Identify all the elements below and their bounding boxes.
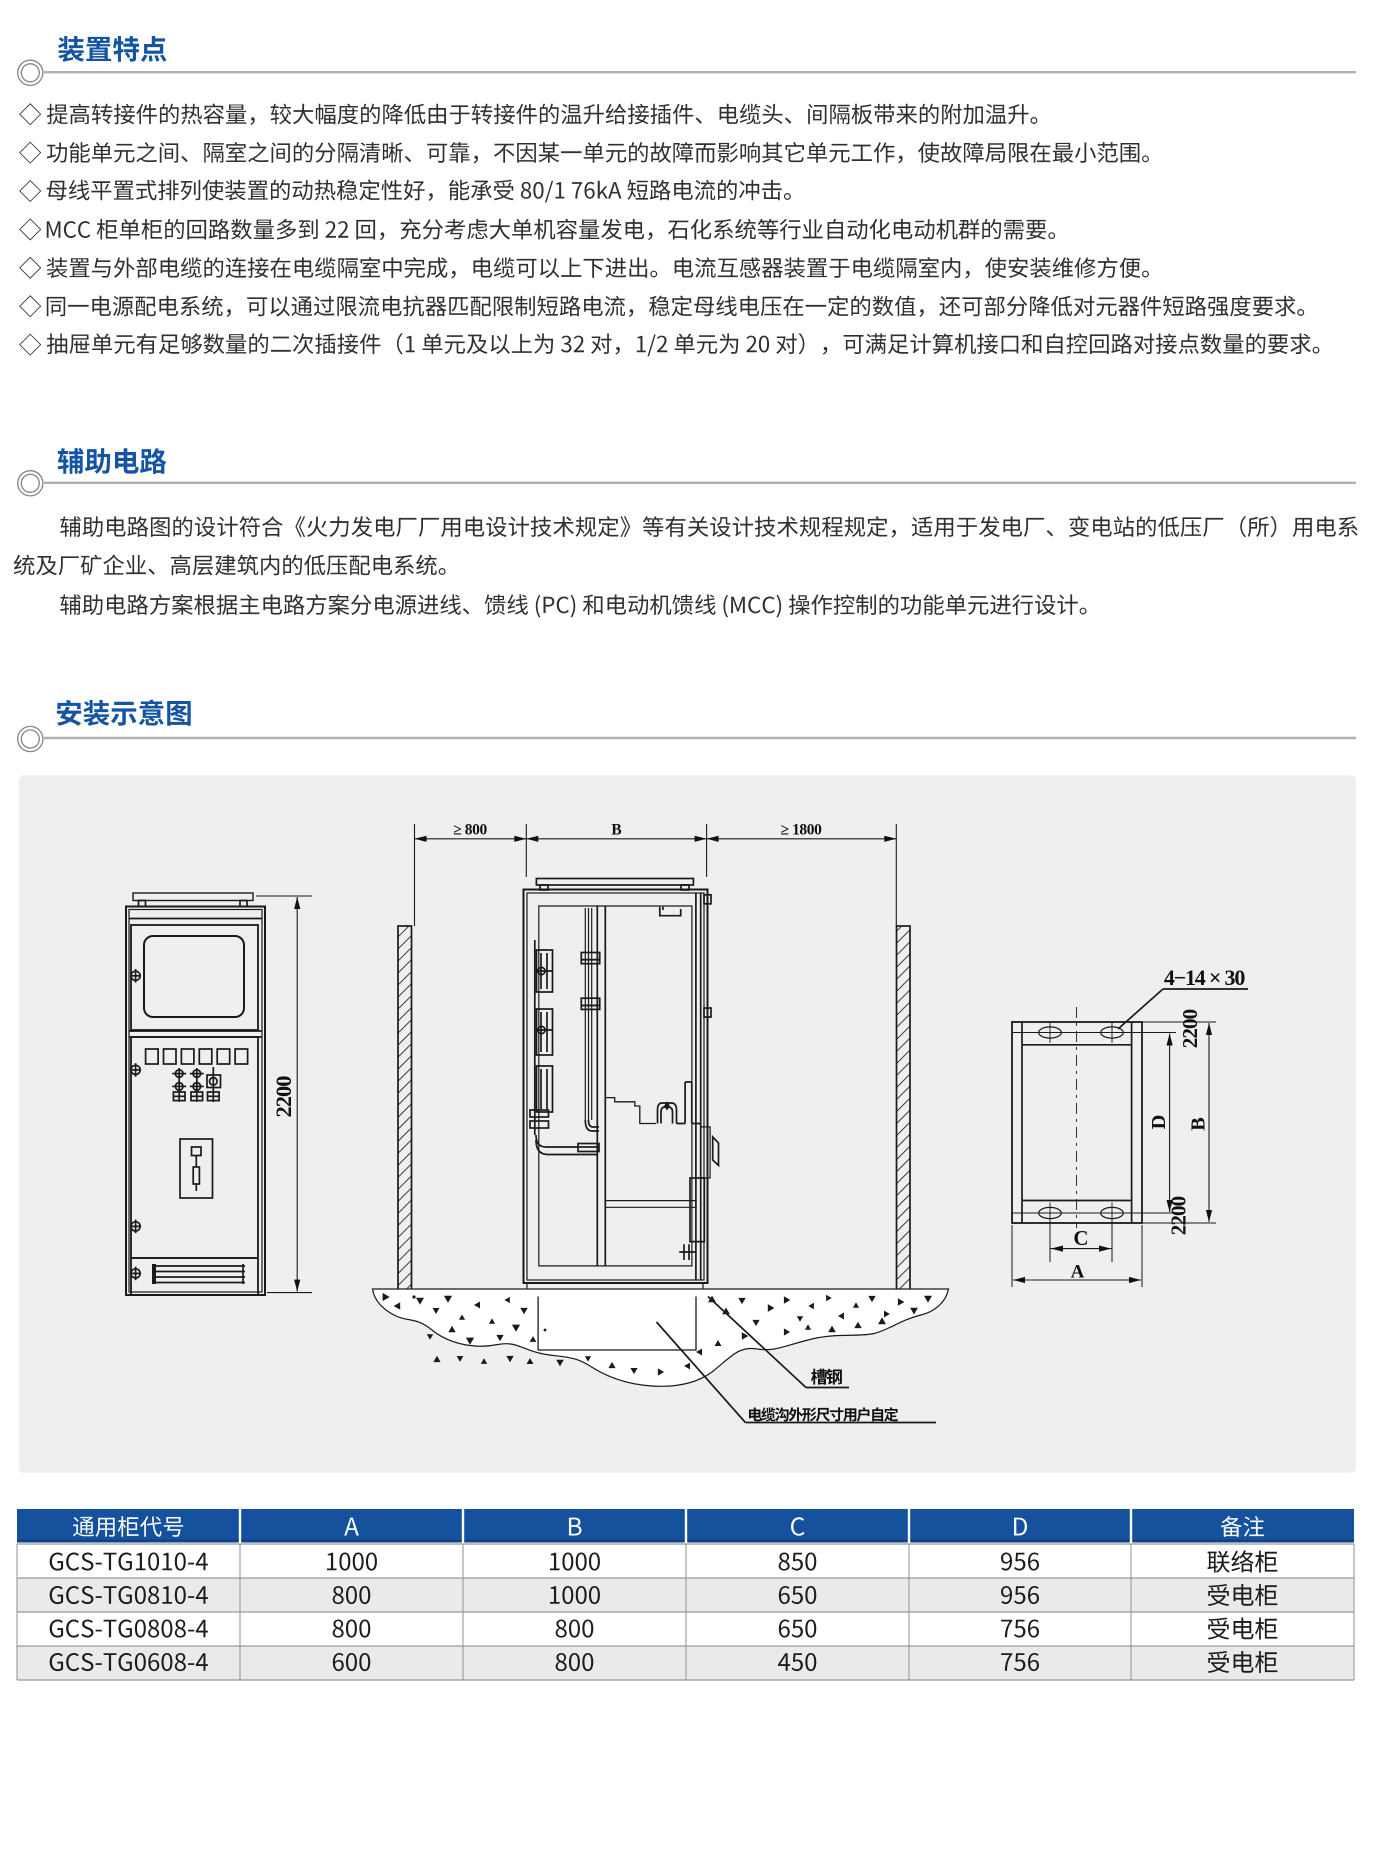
svg-text:2200: 2200 [1178, 1009, 1202, 1048]
svg-text:4−14 × 30: 4−14 × 30 [1164, 965, 1245, 990]
svg-text:B: B [1187, 1117, 1209, 1131]
svg-text:≥ 800: ≥ 800 [453, 822, 487, 839]
svg-text:B: B [611, 822, 621, 839]
svg-text:C: C [1073, 1226, 1088, 1250]
svg-text:2200: 2200 [271, 1076, 296, 1118]
svg-text:2200: 2200 [1166, 1196, 1190, 1235]
svg-text:A: A [1071, 1261, 1085, 1282]
svg-text:D: D [1148, 1115, 1170, 1130]
svg-text:≥ 1800: ≥ 1800 [781, 822, 823, 839]
